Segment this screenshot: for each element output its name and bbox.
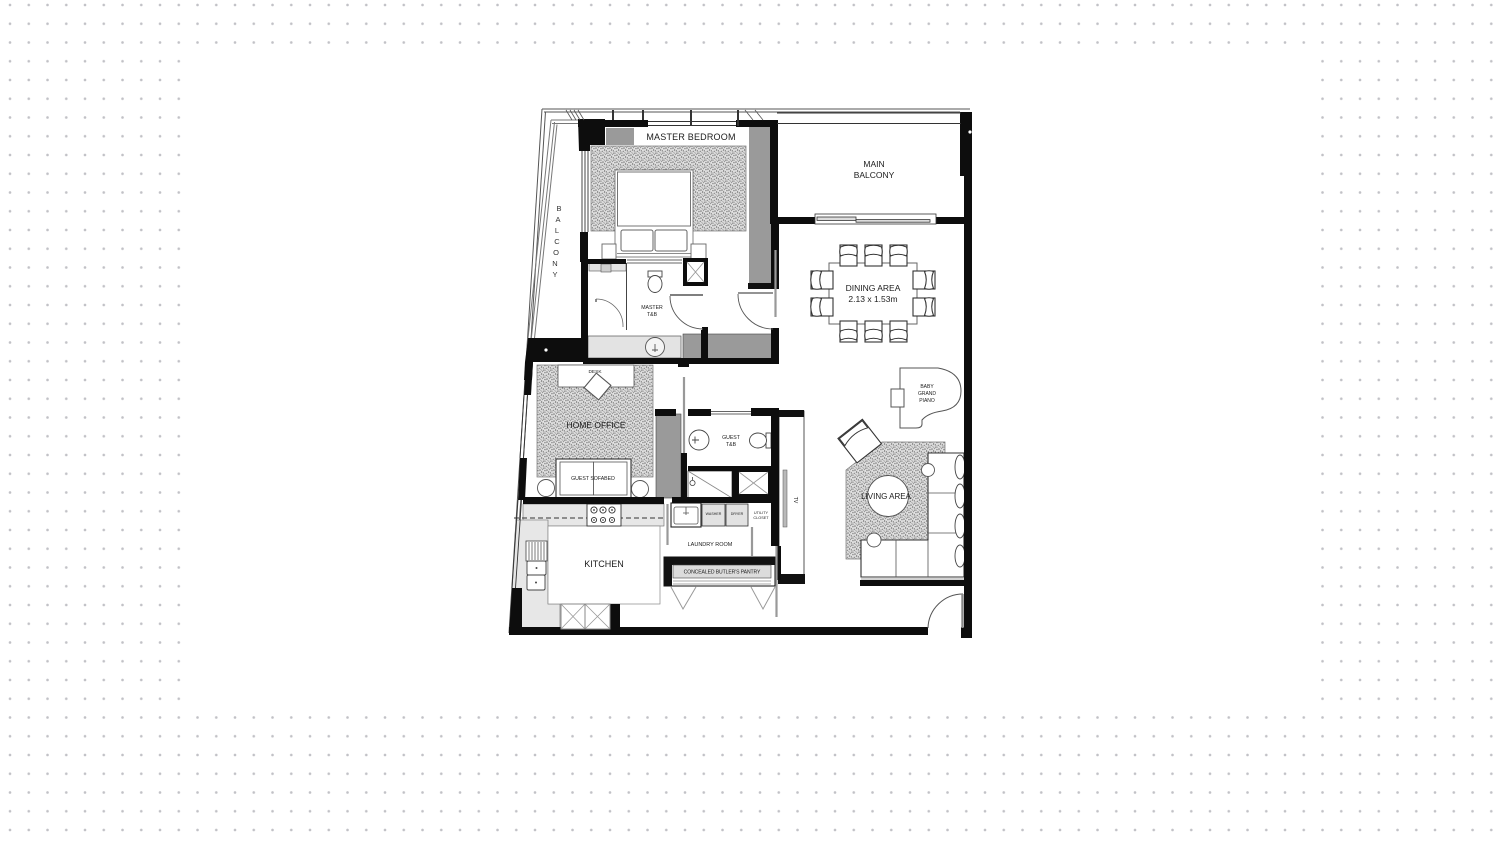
svg-text:DESK: DESK: [588, 369, 602, 375]
svg-text:BABY: BABY: [920, 384, 934, 390]
svg-text:LAUNDRY ROOM: LAUNDRY ROOM: [688, 542, 733, 548]
svg-text:HOME OFFICE: HOME OFFICE: [566, 420, 625, 430]
svg-text:CONCEALED BUTLER'S PANTRY: CONCEALED BUTLER'S PANTRY: [684, 570, 761, 576]
svg-text:PIANO: PIANO: [919, 398, 935, 404]
svg-text:CLOSET: CLOSET: [753, 516, 769, 520]
svg-text:C: C: [554, 237, 560, 246]
svg-text:O: O: [553, 248, 559, 257]
svg-text:GUEST: GUEST: [722, 435, 741, 441]
svg-text:KITCHEN: KITCHEN: [584, 559, 624, 569]
svg-text:T&B: T&B: [647, 312, 658, 318]
svg-text:T&B: T&B: [726, 442, 737, 448]
svg-text:A: A: [555, 215, 560, 224]
svg-text:N: N: [552, 259, 557, 268]
svg-text:BALCONY: BALCONY: [854, 170, 895, 180]
svg-text:WASHER: WASHER: [706, 512, 722, 516]
svg-text:2.13 x 1.53m: 2.13 x 1.53m: [848, 294, 897, 304]
svg-text:UTILITY: UTILITY: [754, 511, 769, 515]
svg-text:LIVING AREA: LIVING AREA: [861, 492, 911, 501]
svg-text:L: L: [555, 226, 559, 235]
svg-text:Y: Y: [552, 270, 557, 279]
svg-text:DINING AREA: DINING AREA: [846, 283, 901, 293]
svg-text:DRYER: DRYER: [731, 512, 744, 516]
svg-text:MAIN: MAIN: [863, 159, 884, 169]
svg-text:GRAND: GRAND: [918, 391, 936, 397]
svg-text:TV: TV: [792, 497, 798, 504]
svg-text:GUEST SOFABED: GUEST SOFABED: [571, 476, 615, 482]
svg-text:B: B: [556, 204, 561, 213]
svg-text:MASTER: MASTER: [641, 305, 663, 311]
svg-text:MASTER BEDROOM: MASTER BEDROOM: [646, 132, 735, 142]
